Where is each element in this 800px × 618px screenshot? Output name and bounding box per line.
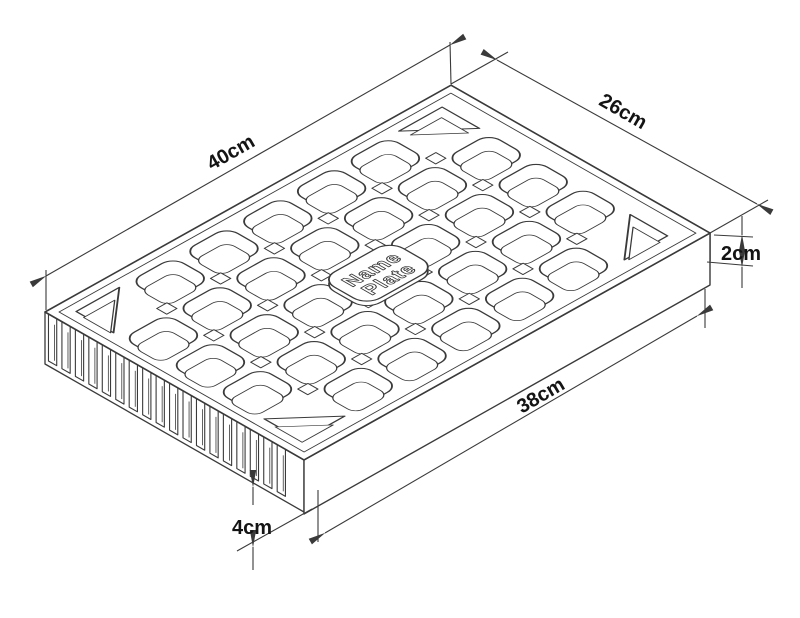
wall-slat	[223, 414, 231, 466]
wall-slat	[116, 352, 124, 404]
dim-extension-line	[714, 235, 753, 237]
wall-slat	[143, 368, 151, 420]
wall-slat	[75, 329, 83, 381]
wall-slat	[62, 322, 70, 374]
wall-slat	[170, 383, 178, 435]
wall-slat	[156, 375, 164, 427]
dim-rim-2cm: 2cm	[707, 216, 761, 288]
dim-rim-label: 2cm	[721, 243, 761, 265]
dim-extension-line	[710, 200, 768, 233]
wall-slat	[210, 406, 218, 458]
dim-length-label: 40cm	[203, 131, 258, 175]
wall-slat	[264, 437, 272, 489]
wall-slat	[250, 429, 258, 481]
wall-slat	[196, 399, 204, 451]
grate-part: Name Plate	[45, 85, 710, 514]
wall-slat	[183, 391, 191, 443]
dim-extension-line	[450, 42, 451, 84]
wall-slat	[277, 445, 285, 497]
iso-grate-diagram-svg: Name Plate 40cm 26cm 2cm	[0, 0, 800, 618]
technical-drawing-canvas: Name Plate 40cm 26cm 2cm	[0, 0, 800, 618]
dim-wall-label: 4cm	[232, 517, 272, 539]
dim-width-label: 26cm	[595, 90, 650, 135]
wall-slat	[237, 422, 245, 474]
wall-slat	[129, 360, 137, 412]
wall-slat	[89, 337, 97, 389]
wall-slat	[102, 345, 110, 397]
wall-slat	[48, 314, 56, 366]
dim-extension-line	[451, 52, 508, 84]
